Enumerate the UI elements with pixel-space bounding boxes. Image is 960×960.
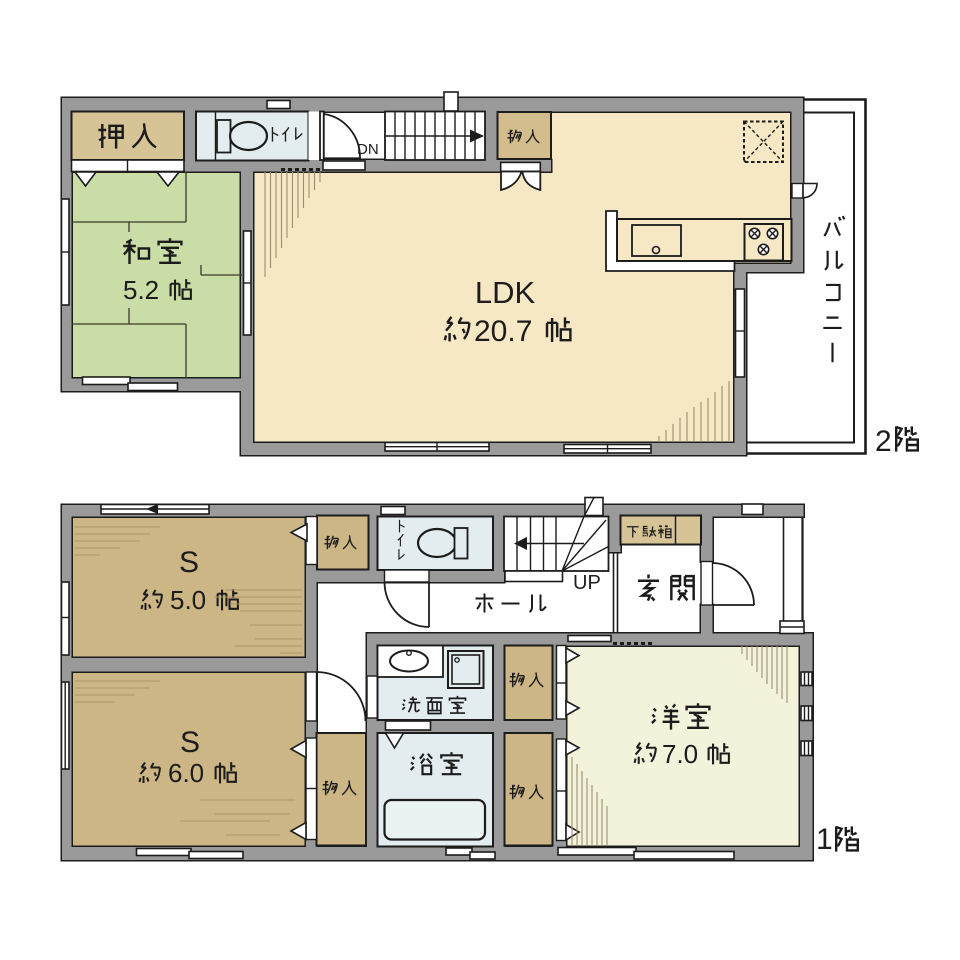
- svg-text:6.0: 6.0: [168, 758, 204, 788]
- svg-text:2: 2: [875, 425, 892, 458]
- svg-text:UP: UP: [573, 572, 601, 594]
- svg-text:LDK: LDK: [475, 275, 536, 310]
- svg-text:1: 1: [816, 823, 833, 856]
- svg-text:20.7: 20.7: [474, 315, 532, 348]
- svg-text:7.0: 7.0: [662, 739, 698, 769]
- svg-text:S: S: [180, 726, 200, 759]
- svg-text:5.0: 5.0: [170, 585, 206, 615]
- svg-text:DN: DN: [357, 141, 379, 158]
- svg-text:5.2: 5.2: [123, 275, 159, 305]
- svg-text:S: S: [179, 546, 199, 579]
